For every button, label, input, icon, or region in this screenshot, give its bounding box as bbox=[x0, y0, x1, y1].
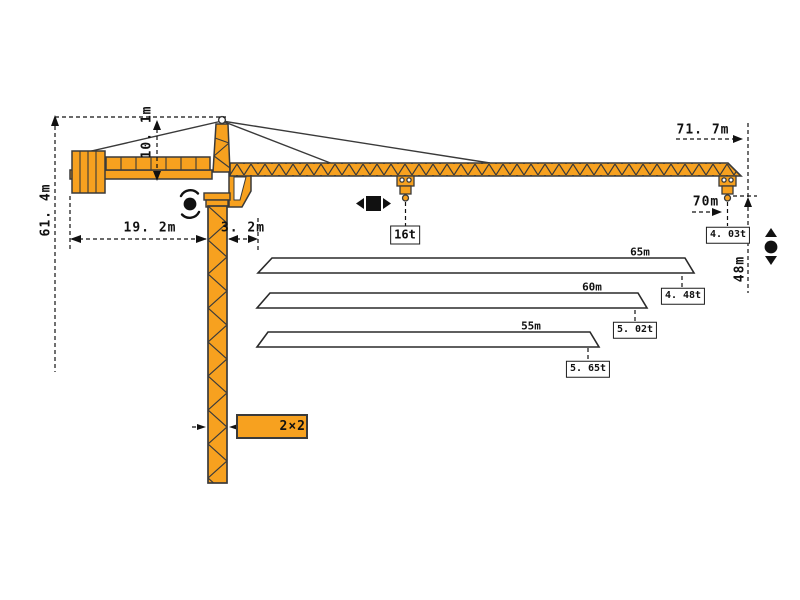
label-profile-55m: 55m bbox=[521, 321, 541, 332]
badge-tip-load-55m: 5. 65t bbox=[566, 361, 610, 378]
label-profile-65m: 65m bbox=[630, 247, 650, 258]
trolley-mid bbox=[397, 176, 414, 201]
crane-diagram: 2×2 61. 4m 10. 1m 19. 2m 3. 2m 71. 7m 70… bbox=[0, 0, 800, 600]
apex-pin bbox=[219, 117, 226, 124]
hook-mid bbox=[403, 195, 409, 201]
arrow-right-3-2 bbox=[248, 235, 258, 243]
label-profile-60m: 60m bbox=[582, 282, 602, 293]
label-head-height: 10. 1m bbox=[141, 106, 154, 159]
machinery-deck bbox=[106, 157, 210, 170]
label-max-radius: 71. 7m bbox=[677, 124, 730, 137]
arrow-mast-left bbox=[197, 424, 206, 430]
tower-mast bbox=[208, 206, 227, 483]
profile-65m bbox=[258, 258, 694, 273]
trolley-travel-icon bbox=[356, 196, 391, 211]
tower-head bbox=[213, 117, 230, 172]
operator-cab bbox=[229, 172, 251, 207]
badge-tip-load-70m: 4. 03t bbox=[706, 227, 750, 244]
label-tip-radius: 70m bbox=[693, 196, 719, 209]
arrow-left-19-2 bbox=[70, 235, 81, 243]
arrow-right-19-2 bbox=[196, 235, 207, 243]
badge-tip-load-60m: 5. 02t bbox=[613, 322, 657, 339]
mast-section-callout: 2×2 bbox=[236, 414, 308, 439]
label-counterjib: 19. 2m bbox=[124, 222, 177, 235]
label-offset: 3. 2m bbox=[221, 222, 265, 235]
mast-section-label: 2×2 bbox=[280, 419, 306, 434]
badge-max-load: 16t bbox=[390, 226, 420, 245]
hoist-icon bbox=[765, 228, 778, 265]
profile-60m bbox=[257, 293, 647, 308]
trolley-tip bbox=[719, 176, 736, 201]
main-jib bbox=[230, 163, 741, 176]
slewing-icon bbox=[181, 190, 199, 218]
badge-tip-load-65m: 4. 48t bbox=[661, 288, 705, 305]
arrow-up-48m bbox=[744, 197, 752, 207]
pendant-jib-2 bbox=[222, 121, 490, 163]
arrow-left-3-2 bbox=[228, 235, 238, 243]
arrow-right-71-7m bbox=[733, 135, 743, 143]
turntable bbox=[204, 193, 230, 207]
hook-tip bbox=[725, 195, 731, 201]
profile-55m bbox=[257, 332, 599, 347]
label-total-height: 61. 4m bbox=[40, 184, 53, 237]
pendant-jib-1 bbox=[222, 121, 333, 164]
label-hook-height: 48m bbox=[734, 256, 747, 282]
